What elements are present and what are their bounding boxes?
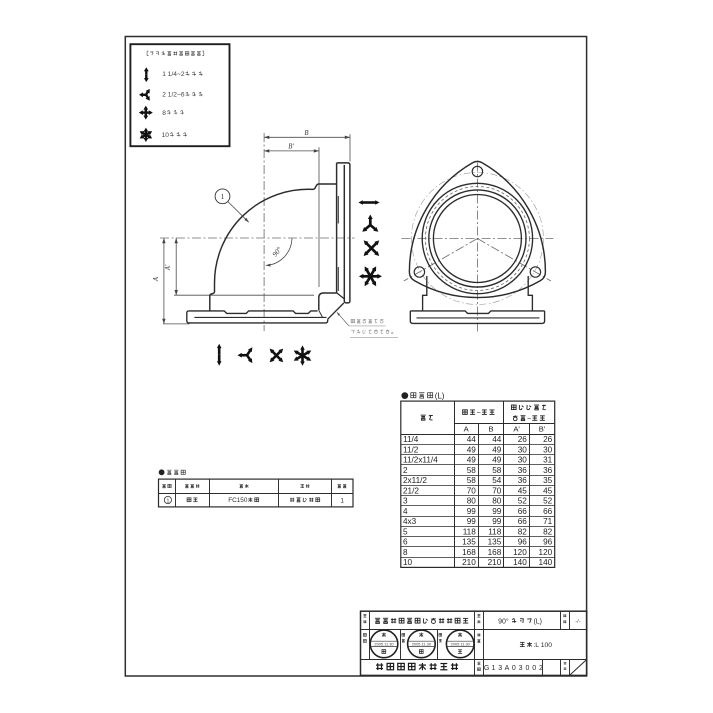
svg-text:3: 3 (498, 665, 502, 672)
svg-text:71: 71 (543, 517, 553, 526)
svg-text:118: 118 (463, 527, 476, 536)
svg-text:210: 210 (462, 558, 476, 567)
svg-text:99: 99 (492, 507, 502, 516)
svg-text:B': B' (539, 425, 546, 434)
svg-text:52: 52 (518, 497, 528, 506)
svg-text:2 1/2~6: 2 1/2~6 (162, 92, 185, 99)
svg-text:10: 10 (403, 558, 413, 567)
svg-text:3: 3 (519, 665, 523, 672)
svg-text:31: 31 (543, 456, 553, 465)
svg-text:45: 45 (518, 486, 528, 495)
svg-text:G: G (484, 665, 489, 672)
svg-text:2005.11.30: 2005.11.30 (451, 642, 471, 647)
svg-text:0: 0 (532, 665, 536, 672)
svg-text:0: 0 (512, 665, 516, 672)
svg-text:168: 168 (488, 548, 502, 557)
svg-text:36: 36 (518, 476, 528, 485)
svg-text:1: 1 (491, 665, 495, 672)
svg-text:80: 80 (492, 497, 502, 506)
svg-text:140: 140 (539, 558, 553, 567)
svg-text:(L): (L) (533, 619, 542, 626)
svg-text:70: 70 (467, 486, 477, 495)
svg-text:135: 135 (462, 538, 476, 547)
svg-text:35: 35 (543, 476, 553, 485)
svg-text:66: 66 (518, 507, 528, 516)
svg-text:~: ~ (477, 408, 481, 417)
svg-text:8: 8 (162, 110, 166, 117)
svg-text:-/-: -/- (575, 619, 581, 625)
svg-text:A': A' (513, 425, 520, 434)
svg-text:99: 99 (467, 517, 477, 526)
svg-text:0: 0 (525, 665, 529, 672)
svg-text:58: 58 (467, 476, 477, 485)
svg-text:4x3: 4x3 (403, 517, 417, 526)
svg-text:2: 2 (539, 665, 543, 672)
svg-text:5: 5 (403, 527, 408, 536)
svg-text:54: 54 (492, 476, 502, 485)
svg-text:52: 52 (543, 497, 553, 506)
svg-text:B': B' (288, 143, 294, 150)
svg-text:118: 118 (488, 527, 501, 536)
svg-text:3: 3 (403, 497, 408, 506)
svg-text:11/2: 11/2 (403, 445, 419, 454)
svg-text:36: 36 (518, 466, 528, 475)
svg-text:2: 2 (403, 466, 408, 475)
svg-text:99: 99 (492, 517, 502, 526)
svg-text:45: 45 (543, 486, 553, 495)
svg-text:1: 1 (221, 192, 225, 201)
svg-text:11/2x11/4: 11/2x11/4 (403, 456, 438, 465)
svg-text:70: 70 (492, 486, 502, 495)
svg-text:44: 44 (467, 435, 477, 444)
svg-text:2x11/2: 2x11/2 (403, 476, 427, 485)
svg-text:4: 4 (403, 507, 408, 516)
svg-text:90°: 90° (498, 618, 509, 626)
svg-text:58: 58 (492, 466, 502, 475)
svg-text:135: 135 (488, 538, 502, 547)
svg-text:168: 168 (462, 548, 476, 557)
svg-text:A: A (153, 276, 160, 282)
svg-text:120: 120 (539, 548, 553, 557)
svg-text:82: 82 (518, 527, 528, 536)
svg-text:B: B (489, 425, 494, 434)
svg-text:A: A (505, 665, 510, 672)
svg-text::L 100: :L 100 (533, 642, 552, 649)
svg-text:30: 30 (543, 445, 553, 454)
svg-text:30: 30 (518, 456, 528, 465)
svg-text:80: 80 (467, 497, 477, 506)
svg-text:66: 66 (518, 517, 528, 526)
svg-text:120: 120 (513, 548, 527, 557)
svg-text:30: 30 (518, 445, 528, 454)
svg-text:1 1/4~2: 1 1/4~2 (162, 71, 185, 78)
svg-text:36: 36 (543, 466, 553, 475)
svg-text:(L): (L) (435, 391, 445, 400)
svg-text:49: 49 (467, 445, 477, 454)
svg-text:1: 1 (340, 497, 344, 504)
svg-text:FC150: FC150 (228, 497, 248, 504)
svg-text:96: 96 (518, 538, 528, 547)
svg-text:99: 99 (467, 507, 477, 516)
svg-text:21/2: 21/2 (403, 486, 419, 495)
svg-text:96: 96 (543, 538, 553, 547)
svg-text:B: B (304, 130, 308, 137)
svg-text:2005.11.30: 2005.11.30 (374, 642, 394, 647)
svg-text:~: ~ (527, 414, 531, 423)
svg-text:49: 49 (492, 456, 502, 465)
svg-text:11/4: 11/4 (403, 435, 419, 444)
svg-text:49: 49 (492, 445, 502, 454)
svg-text:2005.11.30: 2005.11.30 (412, 642, 432, 647)
svg-text:26: 26 (518, 435, 528, 444)
svg-text:140: 140 (513, 558, 527, 567)
svg-text:66: 66 (543, 507, 553, 516)
svg-text:A': A' (165, 264, 172, 271)
svg-text:26: 26 (543, 435, 553, 444)
svg-text:210: 210 (488, 558, 502, 567)
svg-text:8: 8 (403, 548, 408, 557)
svg-text:58: 58 (467, 466, 477, 475)
svg-text:82: 82 (543, 527, 553, 536)
svg-text:10: 10 (162, 132, 170, 139)
svg-text:1: 1 (166, 498, 169, 504)
svg-text:44: 44 (492, 435, 502, 444)
svg-text:49: 49 (467, 456, 477, 465)
svg-text:6: 6 (403, 538, 408, 547)
